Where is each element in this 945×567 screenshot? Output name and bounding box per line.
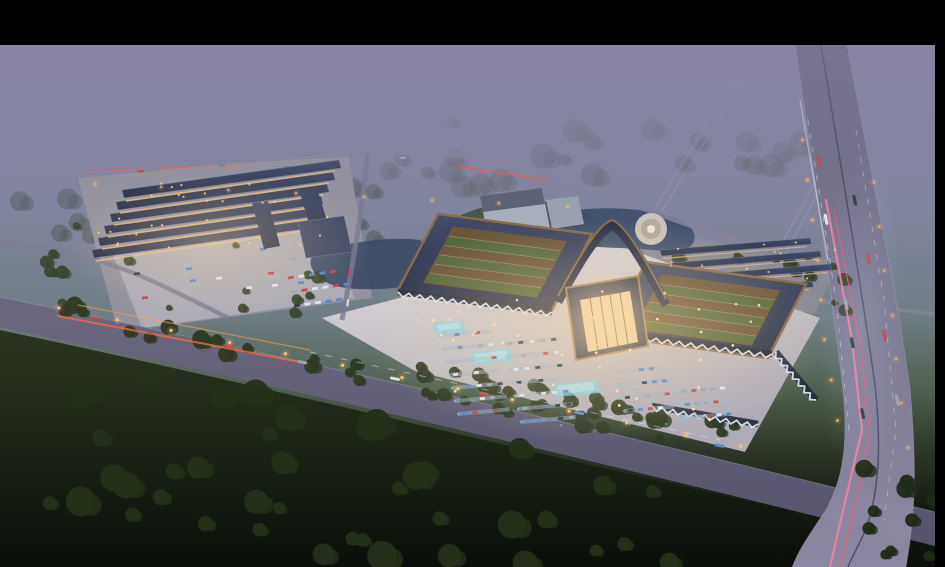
tree — [50, 268, 59, 277]
tree — [288, 411, 307, 430]
tree — [905, 485, 918, 498]
tree — [205, 520, 216, 531]
tree — [174, 467, 186, 479]
tree — [80, 494, 101, 515]
street-light — [169, 329, 172, 332]
tree — [439, 515, 449, 525]
street-light — [57, 306, 60, 309]
car — [347, 300, 348, 305]
tree — [101, 434, 113, 446]
highway-sheen — [815, 150, 905, 490]
tree — [53, 252, 60, 259]
letterbox-top-bar — [0, 0, 945, 45]
parked-car — [326, 301, 332, 302]
tree — [652, 488, 661, 497]
haze-final — [0, 45, 935, 195]
tree — [912, 517, 922, 527]
tree — [74, 301, 86, 313]
image-area — [0, 45, 941, 567]
tree — [50, 500, 60, 510]
tree — [149, 373, 165, 389]
tree — [928, 554, 936, 562]
tree — [114, 472, 134, 492]
street-light — [498, 202, 501, 205]
parked-car — [305, 304, 311, 305]
tree — [312, 363, 323, 374]
parked-car — [315, 302, 321, 303]
tree — [161, 493, 173, 505]
tree — [314, 356, 320, 362]
tree — [512, 518, 532, 538]
site-light — [795, 241, 797, 243]
tree — [399, 485, 409, 495]
letterbox-right-bar — [935, 0, 945, 567]
tree — [449, 550, 466, 567]
scene-canvas — [0, 0, 945, 567]
tree — [603, 481, 617, 495]
parked-car — [336, 299, 342, 300]
tree — [79, 398, 89, 408]
tree — [362, 537, 372, 547]
tree — [519, 444, 534, 459]
tree — [226, 350, 238, 362]
street-light — [900, 402, 903, 405]
tree — [198, 462, 214, 478]
tree — [359, 378, 367, 386]
tree — [869, 525, 878, 534]
car — [299, 361, 306, 362]
tree — [596, 548, 605, 557]
street-light — [811, 219, 814, 222]
tree — [217, 338, 226, 347]
car — [92, 318, 99, 319]
street-light — [739, 444, 742, 447]
tree — [149, 335, 157, 343]
tree — [624, 541, 634, 551]
tree — [376, 416, 396, 436]
tree — [721, 430, 728, 437]
street-light — [284, 352, 287, 355]
site-light — [774, 251, 776, 253]
street-light — [431, 199, 434, 202]
tree — [323, 549, 339, 565]
site-light — [779, 252, 781, 254]
street-light — [116, 318, 119, 321]
tree — [221, 391, 238, 408]
tree — [279, 505, 288, 514]
tree — [874, 508, 883, 517]
street-light — [363, 195, 366, 198]
street-light — [907, 446, 910, 449]
street-light — [566, 206, 569, 209]
street-light — [228, 341, 231, 344]
car — [716, 445, 723, 446]
tree — [350, 370, 357, 377]
site-light — [763, 243, 765, 245]
tree — [92, 389, 104, 401]
tree — [546, 515, 559, 528]
tree — [425, 467, 439, 481]
tree — [132, 511, 142, 521]
tree — [256, 496, 273, 513]
rendering-viewport — [0, 0, 945, 567]
tree — [295, 310, 303, 318]
tree — [269, 431, 279, 441]
tree — [282, 457, 299, 474]
tree — [46, 259, 55, 268]
gate-glow — [557, 268, 653, 364]
tree — [891, 548, 899, 556]
tree — [245, 390, 259, 404]
street-light — [341, 364, 344, 367]
tree — [259, 526, 269, 536]
